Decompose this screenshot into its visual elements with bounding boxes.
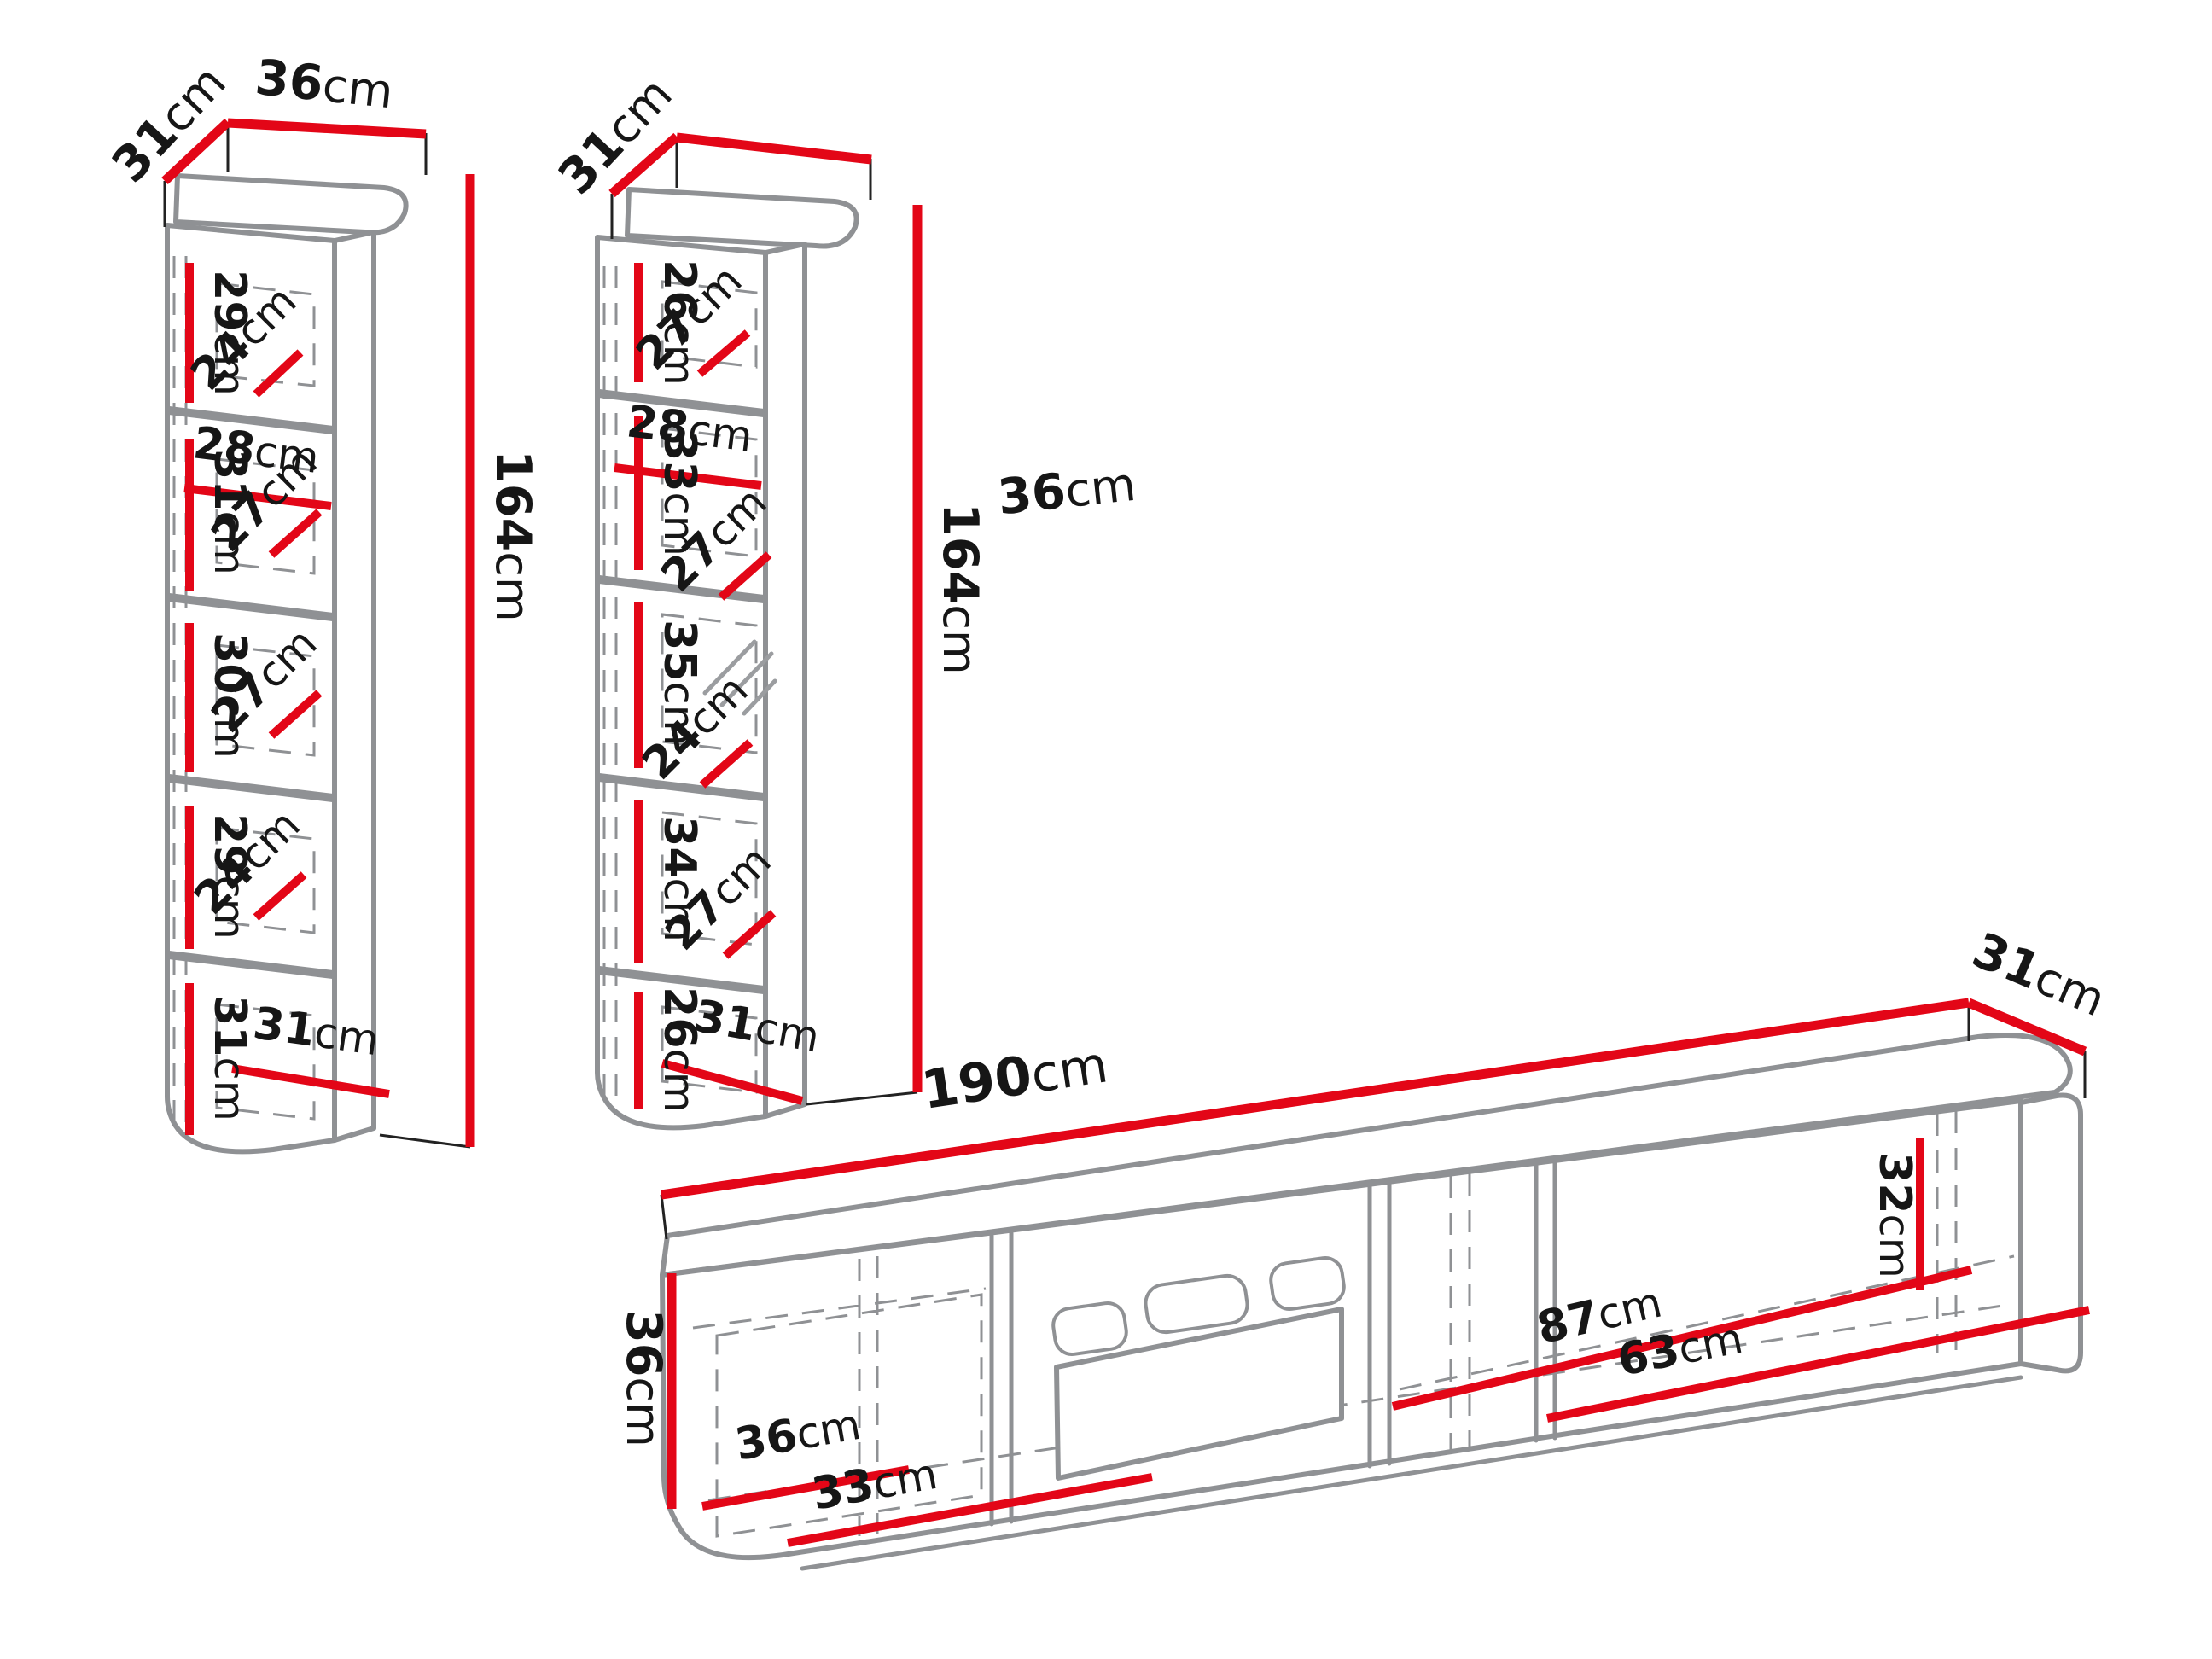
middle-cabinet-width-label: 36cm xyxy=(995,456,1138,527)
left-cabinet-side-panel xyxy=(335,232,374,1140)
middle-cabinet: 31cm 36cm 164cm 26cm 27cm 28cm 33cm 27cm… xyxy=(548,66,1138,1127)
middle-cabinet-height-label: 164cm xyxy=(932,503,988,675)
middle-cabinet-width-dim-line xyxy=(677,137,871,160)
tv-stand-vent-slot xyxy=(1051,1301,1129,1356)
middle-cabinet-top-panel xyxy=(627,189,857,247)
left-cabinet-section5-height-label: 31cm xyxy=(204,995,255,1121)
left-cabinet-top-panel xyxy=(176,176,406,233)
left-cabinet-width-dim-line xyxy=(228,123,426,134)
tv-stand-width-label: 190cm xyxy=(917,1032,1112,1121)
middle-cabinet-side-panel xyxy=(765,244,805,1116)
tv-stand: 190cm 31cm 36cm 36cm 33cm 87cm 63cm 32cm xyxy=(615,923,2114,1569)
left-cabinet-width-label: 36cm xyxy=(253,49,396,120)
tv-stand-vent-slot xyxy=(1269,1255,1347,1311)
tv-stand-inner-height-label: 32cm xyxy=(1869,1152,1920,1278)
furniture-dimension-sheet: 31cm 36cm 164cm 29cm 24cm 28cm 31cm 27cm… xyxy=(0,0,2212,1659)
tv-stand-side-panel xyxy=(2021,1095,2081,1371)
left-cabinet-height-label: 164cm xyxy=(485,450,541,622)
furniture-dimensions-diagram: 31cm 36cm 164cm 29cm 24cm 28cm 31cm 27cm… xyxy=(0,0,2212,1659)
left-cabinet: 31cm 36cm 164cm 29cm 24cm 28cm 31cm 27cm… xyxy=(102,49,541,1152)
tv-stand-height-label: 36cm xyxy=(615,1309,672,1447)
